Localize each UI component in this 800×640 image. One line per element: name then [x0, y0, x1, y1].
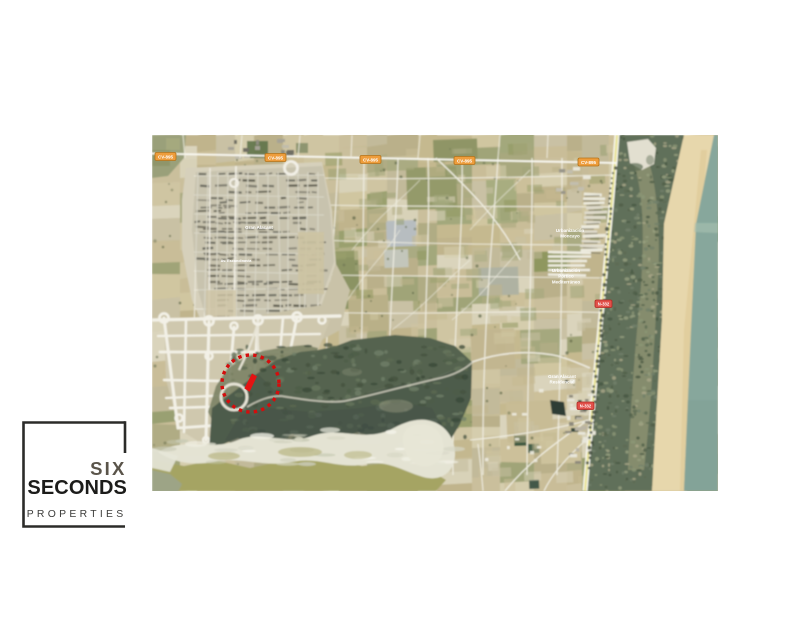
- svg-text:SIX: SIX: [90, 458, 126, 479]
- svg-text:PROPERTIES: PROPERTIES: [27, 509, 127, 520]
- svg-text:SECONDS: SECONDS: [27, 477, 127, 499]
